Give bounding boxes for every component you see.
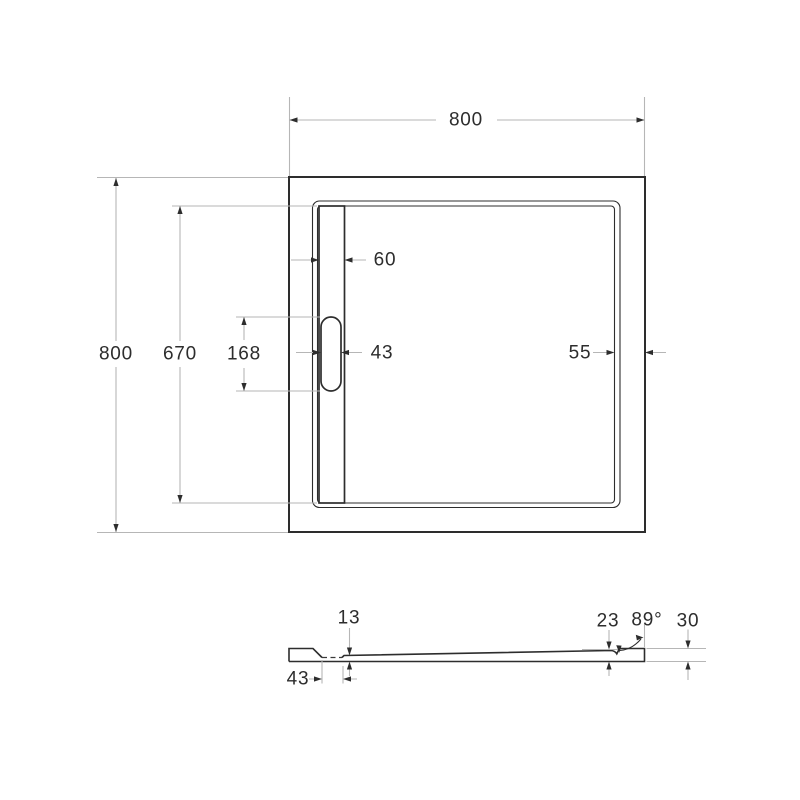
arrowhead-down-icon	[241, 383, 246, 391]
section-profile-left	[289, 649, 322, 662]
dim-recess-width-label: 43	[287, 669, 310, 690]
arrowhead-left-icon	[290, 117, 298, 122]
arrowhead-up-icon	[606, 662, 611, 670]
technical-drawing-page: 800 800 670 168 60	[0, 0, 800, 800]
dim-overall-height-lines	[647, 630, 707, 681]
arrowhead-left-icon	[645, 350, 653, 355]
top-view: 800 800 670 168 60	[97, 97, 666, 533]
arrowhead-down-icon	[685, 641, 690, 649]
arrowhead-right-icon	[636, 635, 644, 641]
dim-recess-width: 43	[287, 660, 357, 690]
arrowhead-up-icon	[347, 662, 352, 670]
dim-channel-length-label: 670	[163, 344, 197, 365]
dim-floor-thickness: 13	[338, 608, 361, 677]
arrowhead-up-icon	[241, 317, 246, 325]
dim-edge-thickness-label: 23	[597, 611, 620, 632]
arrowhead-down-icon	[113, 524, 118, 532]
dim-overall-depth-label: 800	[99, 344, 133, 365]
dim-overall-height-label: 30	[677, 611, 700, 632]
dim-overall-width-label: 800	[449, 110, 483, 131]
arrowhead-right-icon	[607, 350, 615, 355]
arrowhead-down-icon	[606, 642, 611, 650]
dim-channel-width-label: 60	[374, 250, 397, 271]
tray-outer-edge	[289, 177, 645, 532]
dim-rim-to-edge: 55	[569, 343, 666, 364]
dim-edge-thickness: 23	[582, 611, 619, 677]
arrowhead-left-icon	[343, 676, 351, 681]
arrowhead-down-icon	[177, 495, 182, 503]
dim-overall-width: 800	[290, 97, 645, 176]
dim-wall-angle-label: 89°	[631, 610, 662, 631]
dim-floor-thickness-label: 13	[338, 608, 361, 629]
dim-slot-length-label: 168	[227, 344, 261, 365]
dim-wall-angle: 89°	[616, 610, 662, 653]
dim-rim-to-edge-label: 55	[569, 343, 592, 364]
dim-edge-thickness-lines	[582, 630, 618, 676]
arrowhead-right-icon	[637, 117, 645, 122]
drain-slot	[321, 317, 341, 391]
arrowhead-left-icon	[345, 257, 353, 262]
shower-tray-drawing: 800 800 670 168 60	[0, 0, 800, 800]
section-profile-body	[289, 649, 645, 662]
arrowhead-up-icon	[177, 206, 182, 214]
dim-slot-length: 168	[227, 317, 320, 391]
arrowhead-up-icon	[113, 178, 118, 186]
arrowhead-right-icon	[314, 676, 322, 681]
arrowhead-up-icon	[685, 662, 690, 670]
arrowhead-down-icon	[347, 648, 352, 656]
dim-slot-width-label: 43	[371, 343, 394, 364]
section-view: 13 43 23 89° 30	[287, 608, 706, 690]
